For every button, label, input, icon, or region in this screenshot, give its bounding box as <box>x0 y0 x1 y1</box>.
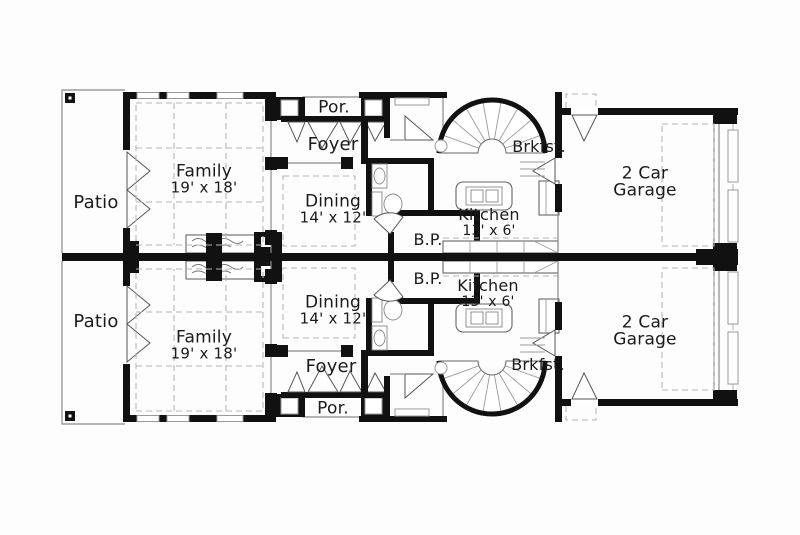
floor-plan-drawing <box>0 0 800 535</box>
room-dim-dining-upper: 14' x 12' <box>300 211 367 226</box>
room-dim-kitchen-upper: 13' x 6' <box>462 224 515 238</box>
room-label-breakfast-lower: Brkfst. <box>511 357 565 373</box>
floor-plan-canvas: Patio Family 19' x 18' Por. Foyer Dining… <box>0 0 800 535</box>
room-label-foyer-upper: Foyer <box>308 136 359 154</box>
room-dim-family-lower: 19' x 18' <box>171 347 238 362</box>
room-label-garage-lower-2: Garage <box>613 332 676 349</box>
party-wall <box>62 249 738 265</box>
room-label-bp-lower: B.P. <box>413 271 442 287</box>
room-label-patio-lower: Patio <box>73 313 118 331</box>
room-label-kitchen-lower: Kitchen <box>457 278 519 294</box>
room-label-breakfast-upper: Brkfst. <box>512 139 566 155</box>
room-label-foyer-lower: Foyer <box>306 358 357 376</box>
room-label-porch-upper: Por. <box>318 100 350 117</box>
room-label-porch-lower: Por. <box>317 401 349 418</box>
room-label-patio-upper: Patio <box>73 194 118 212</box>
room-dim-family-upper: 19' x 18' <box>171 181 238 196</box>
room-dim-dining-lower: 14' x 12' <box>300 312 367 327</box>
room-label-bp-upper: B.P. <box>413 232 442 248</box>
room-dim-kitchen-lower: 13' x 6' <box>461 295 514 309</box>
room-label-kitchen-upper: Kitchen <box>458 207 520 223</box>
room-label-garage-upper-2: Garage <box>613 183 676 200</box>
